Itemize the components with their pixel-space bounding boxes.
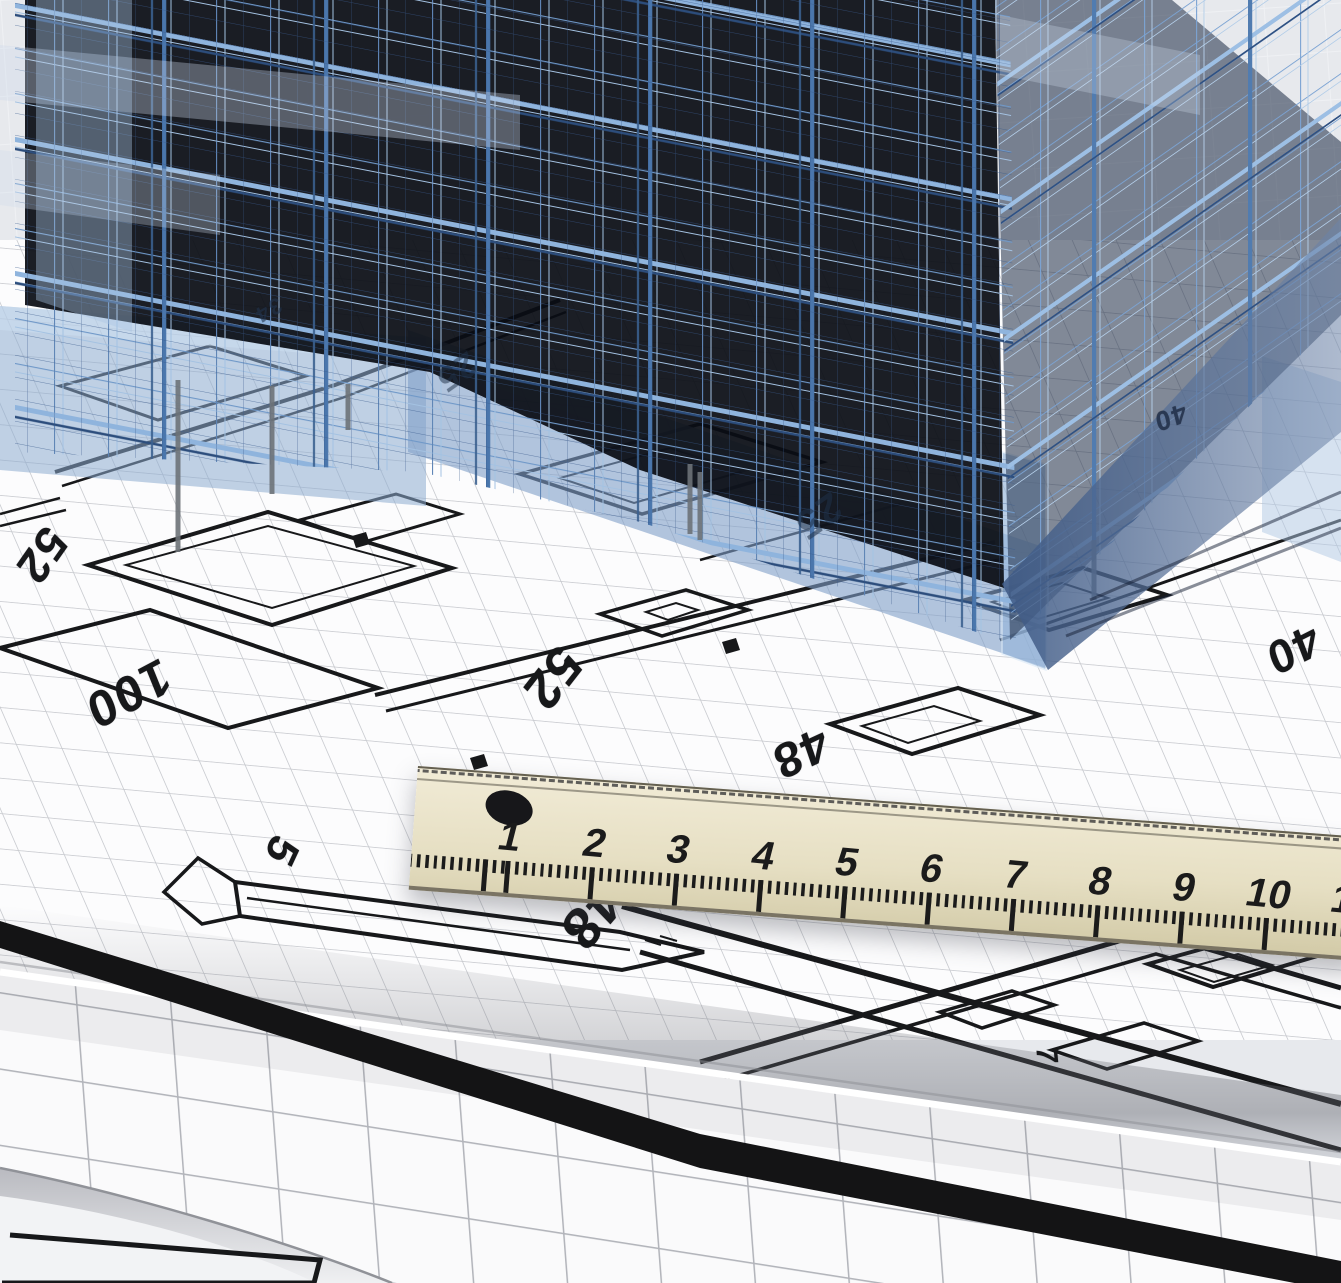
ruler-number: 10 [1241,870,1296,918]
ruler-number: 2 [577,821,610,867]
ruler-number: 5 [830,840,863,886]
ruler-number: 6 [915,846,948,892]
ruler-number: 9 [1167,865,1200,911]
ruler-number: 8 [1083,859,1116,905]
ruler-number: 11 [1326,877,1341,925]
ruler-number: 1 [493,814,526,860]
background-art [0,0,1341,1283]
ruler-number: 3 [662,827,695,873]
ruler-number: 4 [746,833,779,879]
ruler-number: 7 [999,852,1032,898]
blueprint-scene: 52100524840402525345487 1234567891011 [0,0,1341,1283]
